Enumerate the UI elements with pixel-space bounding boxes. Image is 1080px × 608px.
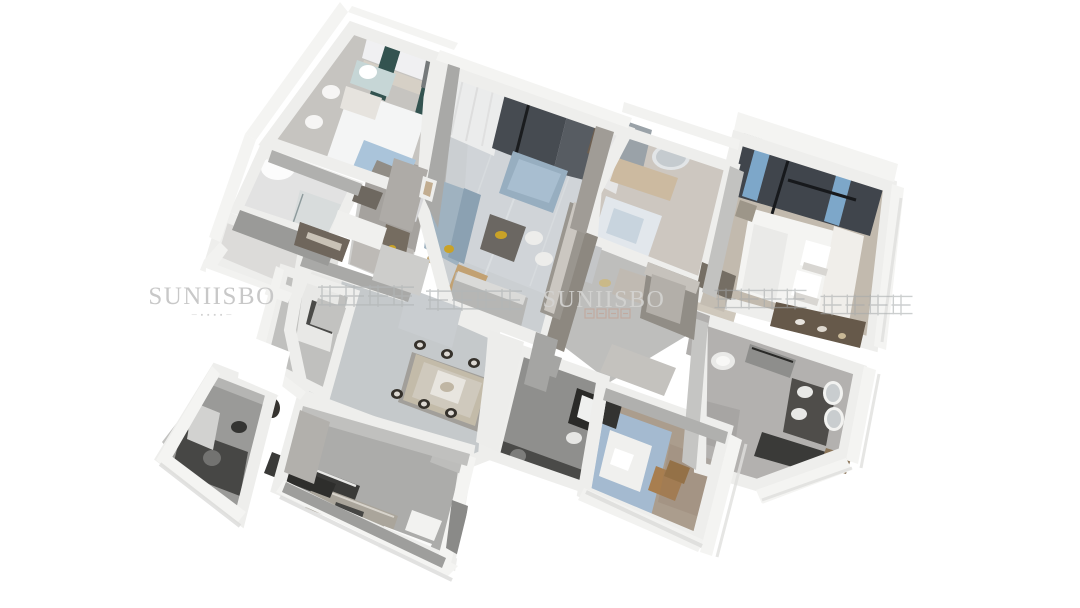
svg-text:SUNIISBO: SUNIISBO xyxy=(148,283,275,310)
svg-text:─ ▪ ▪ ▪ ▪ ─: ─ ▪ ▪ ▪ ▪ ─ xyxy=(191,312,233,319)
